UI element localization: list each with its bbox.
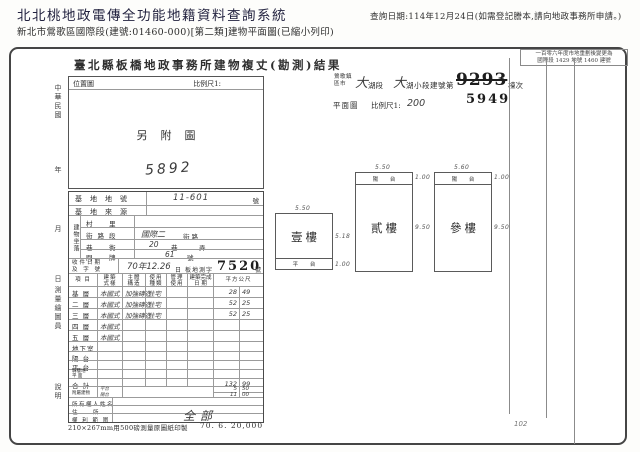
header-completion-date: 建築完成日 期 (187, 274, 213, 286)
area-int: 28 (213, 287, 239, 297)
plan-label: 平面圖 (333, 100, 359, 111)
subsection-label: 湖小段建號第 (406, 80, 454, 91)
address-lane-row: 巷 衖 20 巷 弄 (81, 239, 263, 249)
town-label: 鶯歌鎮 區市 (334, 74, 352, 87)
cell-use (145, 361, 166, 369)
origin-row-label: 基地來源 (69, 206, 147, 215)
row-label: 基 層 (69, 287, 97, 297)
row-label: 附屬建物 (69, 387, 97, 397)
row-label: 二 層 (69, 298, 97, 308)
parcel-row-label: 基地地號 (69, 192, 147, 205)
town-name: 鶯歌鎮 (334, 74, 352, 81)
dim-top: 5.50 (295, 205, 310, 212)
building-label: 貳樓 (356, 184, 412, 271)
area-dec (239, 320, 263, 330)
scanned-document: 臺北縣板橋地政事務所建物複丈(勘測)結果 一百零六年度市地重劃後變更為 國際段 … (0, 0, 640, 452)
row-label: 權 利 範 圍 (69, 414, 113, 422)
cell-date (187, 298, 213, 308)
cell-use: 住宅 (145, 309, 166, 319)
cell-use (145, 370, 166, 378)
area-dec (239, 352, 263, 360)
cell-style: 本國式 (97, 298, 122, 308)
lane-label: 巷 衖 (81, 240, 135, 249)
cell-structure (122, 320, 145, 330)
cell-structure (122, 342, 145, 351)
area-dec: 49 (239, 287, 263, 297)
cell-date (187, 361, 213, 369)
new-building-number: 5949 (466, 92, 510, 107)
attachment-names: 平台陽台 (97, 387, 122, 397)
cell-date (187, 331, 213, 341)
floor-row: 基 層本國式加強磚造住宅2849 (69, 286, 263, 297)
area-int: 511 (213, 387, 239, 397)
plan-scale-label: 比例尺1: (371, 100, 401, 111)
header-structure: 主體構造 (122, 274, 145, 286)
cell-use (145, 331, 166, 341)
dim-main: 5.18 (335, 233, 350, 240)
section-hw-1: 大 (355, 72, 368, 91)
row-label: 合 計 (69, 379, 97, 386)
cell-style (97, 352, 122, 360)
area-dec: 99 (239, 379, 263, 386)
dim-strip: 1.00 (494, 174, 509, 181)
area-dec: 5000 (239, 387, 263, 397)
building-outline: 平 台壹樓 (275, 213, 333, 270)
strip-label: 平 台 (288, 260, 321, 268)
cell-date (187, 352, 213, 360)
cell-mgmt (166, 331, 187, 341)
floor-row: 二 層本國式加強磚造住宅5225 (69, 297, 263, 308)
town-type: 區市 (334, 81, 352, 88)
floor-row: 四 層本國式 (69, 319, 263, 330)
parcel-unit: 號 (253, 195, 260, 205)
floor-row: 附屬建物平台陽台5115000 (69, 386, 263, 397)
floor-row: 平 台 (69, 360, 263, 369)
floor-row: 陽 台 (69, 351, 263, 360)
cell-style (97, 379, 122, 386)
cell-mgmt (166, 370, 187, 378)
area-dec: 25 (239, 309, 263, 319)
old-building-number: 9293 (456, 70, 507, 90)
header-use: 使用種類 (145, 274, 166, 286)
address-village-row: 村 里 (81, 216, 263, 227)
margin-label: 月 (53, 225, 63, 234)
row-label: 四 層 (69, 320, 97, 330)
building-address-group: 建物坐落 村 里 街路段 國際二 街路 巷 衖 20 (69, 215, 263, 258)
receipt-row: 收件日期 及 字 號 70年12.26 日 板地測字 7520 號 (69, 258, 263, 273)
remark-line1: 一百零六年度市地重劃後變更為 (521, 51, 627, 58)
site-origin-row: 基地來源 (69, 205, 263, 215)
section-hw-2: 大 (393, 72, 406, 91)
area-dec (239, 361, 263, 369)
cell-mgmt (166, 320, 187, 330)
building-label: 參樓 (435, 184, 491, 271)
plan-scale-value: 200 (407, 98, 425, 109)
header-item: 項 目 (69, 274, 97, 286)
floors-header-row: 項 目 建築式樣 主體構造 使用種類 管理使用 建築完成日 期 平方公尺 (69, 273, 263, 286)
survey-result-table: 基地地號 11-601 號 基地來源 建物坐落 村 里 街路段 國際二 (68, 191, 264, 423)
dim-strip: 1.00 (415, 174, 430, 181)
strip-label: 陽 台 (368, 175, 401, 183)
header-style: 建築式樣 (97, 274, 122, 286)
corner-note-hw: 102 (514, 420, 527, 428)
area-int (213, 370, 239, 378)
cell-style: 本國式 (97, 320, 122, 330)
area-dec (239, 370, 263, 378)
parcel-number-hw: 11-601 (173, 193, 209, 203)
margin-label: 中華民國 (53, 84, 63, 120)
location-scale-label: 比例尺1: (193, 79, 221, 89)
address-street-row: 街路段 國際二 街路 (81, 227, 263, 239)
floor-row: 住 所 (69, 405, 263, 413)
cell-style (97, 361, 122, 369)
area-int (213, 342, 239, 351)
floor-row: 騎樓地平 面 (69, 369, 263, 378)
cell-date (187, 287, 213, 297)
see-attached-note: 另附圖 (69, 127, 263, 143)
paper-spec-note: 210×267mm用500磅測量原圖紙印製 (68, 422, 188, 432)
row-value (113, 398, 263, 405)
site-parcel-row: 基地地號 11-601 號 (69, 192, 263, 205)
margin-label: 年 (53, 166, 63, 175)
building-number-suffix: 棟次 (508, 80, 523, 91)
cell-style (97, 342, 122, 351)
rights-scope-hw: 全部 (183, 407, 217, 424)
cell-mgmt (166, 298, 187, 308)
header-management: 管理使用 (166, 274, 187, 286)
floors-rows: 基 層本國式加強磚造住宅2849二 層本國式加強磚造住宅5225三 層本國式加強… (69, 286, 263, 422)
row-label: 平 台 (69, 361, 97, 369)
cell-use: 住宅 (145, 298, 166, 308)
row-label: 三 層 (69, 309, 97, 319)
area-int: 52 (213, 298, 239, 308)
building-outline: 陽 台貳樓 (355, 172, 413, 272)
fold-line (546, 58, 547, 418)
margin-label: 測量繪圖員 (53, 286, 63, 331)
cell-mgmt (166, 379, 187, 386)
receipt-label: 收件日期 及 字 號 (69, 259, 119, 273)
dim-strip: 1.00 (335, 261, 350, 268)
building-label: 壹樓 (276, 214, 332, 259)
document-title: 臺北縣板橋地政事務所建物複丈(勘測)結果 (74, 57, 342, 73)
street-label: 街路段 (81, 228, 135, 239)
cell-use (145, 342, 166, 351)
strip-label: 陽 台 (447, 175, 480, 183)
cell-date (187, 320, 213, 330)
cell-date (187, 309, 213, 319)
cell-use (145, 352, 166, 360)
cell-structure (122, 370, 145, 378)
cell-structure: 加強磚造 (122, 287, 145, 297)
building-outline: 陽 台參樓 (434, 172, 492, 272)
dim-main: 9.50 (415, 224, 430, 231)
dim-main: 9.50 (494, 224, 509, 231)
floor-row: 所有權人姓名 (69, 397, 263, 405)
cell-mgmt (166, 309, 187, 319)
cell-structure: 加強磚造 (122, 309, 145, 319)
dim-top: 5.60 (454, 164, 469, 171)
floor-row: 五 層本國式 (69, 330, 263, 341)
location-box-label: 位置圖 (73, 79, 94, 89)
cell-structure (122, 352, 145, 360)
row-label: 陽 台 (69, 352, 97, 360)
cell-structure: 加強磚造 (122, 298, 145, 308)
cell-style: 本國式 (97, 331, 122, 341)
cell-mgmt (166, 361, 187, 369)
fold-line (509, 58, 510, 414)
cell-style: 本國式 (97, 287, 122, 297)
area-dec: 25 (239, 298, 263, 308)
cell-use (145, 379, 166, 386)
address-group-label: 建物坐落 (69, 216, 81, 258)
cell-date (187, 370, 213, 378)
row-label: 住 所 (69, 406, 113, 413)
dim-top: 5.50 (375, 164, 390, 171)
cell-mgmt (166, 352, 187, 360)
receipt-date-hw: 70年12.26 (127, 260, 171, 272)
row-label: 所有權人姓名 (69, 398, 113, 405)
cell-structure (122, 361, 145, 369)
area-dec (239, 331, 263, 341)
floor-row: 地下室 (69, 341, 263, 351)
cell-date (187, 342, 213, 351)
floor-row: 合 計13299 (69, 378, 263, 386)
balcony-strip: 平 台 (276, 258, 332, 269)
area-int (213, 352, 239, 360)
header-square-meters: 平方公尺 (213, 274, 263, 286)
cell-mgmt (166, 342, 187, 351)
cell-style (97, 370, 122, 378)
cell-use (145, 320, 166, 330)
row-label: 地下室 (69, 342, 97, 351)
fold-line (574, 58, 575, 444)
area-int (213, 331, 239, 341)
cell-use: 住宅 (145, 287, 166, 297)
cell-structure (122, 379, 145, 386)
empty-cells (122, 387, 213, 397)
area-int: 132 (213, 379, 239, 386)
area-int (213, 320, 239, 330)
section-label-1: 湖段 (368, 80, 383, 91)
lane-number-hw: 20 (149, 240, 159, 249)
cell-style: 本國式 (97, 309, 122, 319)
area-int (213, 361, 239, 369)
cell-structure (122, 331, 145, 341)
margin-label: 日 (53, 275, 63, 284)
village-label: 村 里 (81, 216, 135, 227)
cell-date (187, 379, 213, 386)
location-sketch-box: 位置圖 比例尺1: 另附圖 5892 (68, 76, 264, 189)
margin-label: 說明 (53, 383, 63, 401)
row-label: 五 層 (69, 331, 97, 341)
area-dec (239, 342, 263, 351)
area-int: 52 (213, 309, 239, 319)
row-label: 騎樓地平 面 (69, 370, 97, 378)
location-hw-number: 5892 (144, 159, 193, 178)
floor-row: 三 層本國式加強磚造住宅5225 (69, 308, 263, 319)
cell-mgmt (166, 287, 187, 297)
